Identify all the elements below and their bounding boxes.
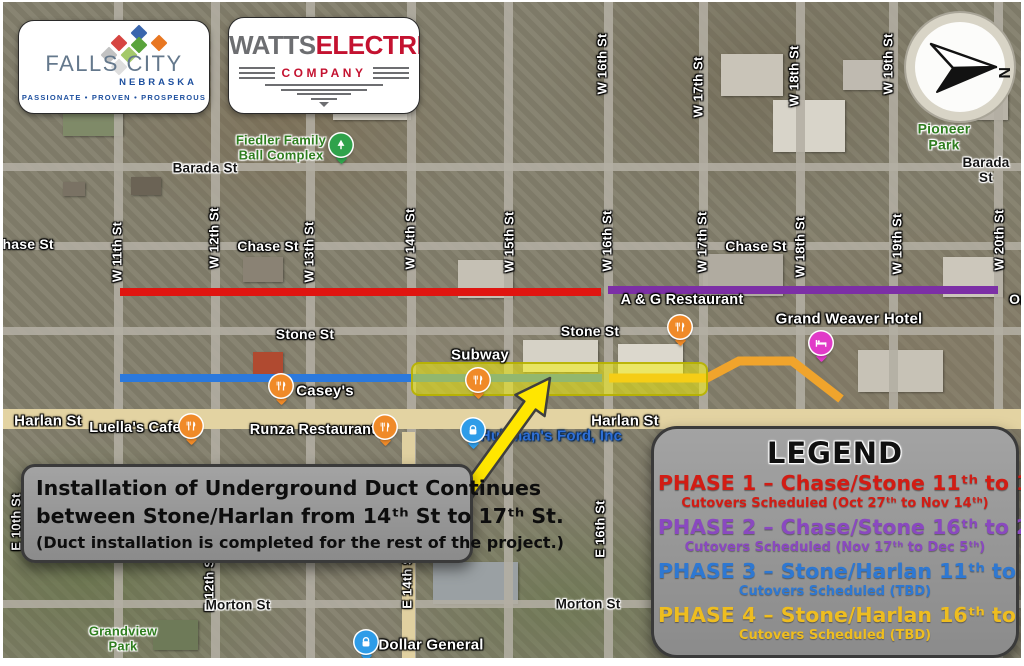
street-label-barada-east: Barada St <box>963 155 1010 185</box>
building <box>858 350 943 392</box>
legend-phase-schedule: Cutovers Scheduled (TBD) <box>658 628 1012 644</box>
aerial-map: W 11th StW 12th StW 13th StW 14th StW 15… <box>3 2 1021 658</box>
lock-pin-icon <box>355 631 378 654</box>
logo-diamond <box>151 35 168 52</box>
place-label-grandview-park: Grandview Park <box>89 624 157 653</box>
duct-work-highlight <box>411 362 708 396</box>
place-label-ag-restaurant: A & G Restaurant <box>621 292 744 308</box>
annotation-line-1: Installation of Underground Duct Continu… <box>36 474 458 502</box>
place-label-subway: Subway <box>451 348 509 365</box>
street-label-w-19th-north: W 19th St <box>882 33 897 94</box>
falls-city-logo-name: FALLS CITY <box>19 51 209 77</box>
building <box>63 182 85 196</box>
street-label-chase-west: Chase St <box>3 237 54 253</box>
street-label-w-16th: W 16th St <box>601 210 616 271</box>
legend-phase-label: PHASE 4 – Stone/Harlan 16ᵗʰ to 18ᵗʰ <box>658 603 1012 628</box>
street-label-e-16th: E 16th St <box>594 500 609 557</box>
street-label-harlan-west: Harlan St <box>14 414 82 431</box>
road <box>3 163 1021 171</box>
annotation-line-3: (Duct installation is completed for the … <box>36 530 458 555</box>
building <box>721 54 783 96</box>
tree-pin-icon <box>330 134 353 157</box>
street-label-barada-west: Barada St <box>173 160 238 175</box>
phase1-route-line <box>120 288 601 296</box>
place-label-dollar-general: Dollar General <box>378 638 483 655</box>
restaurant-pin-icon <box>669 316 692 339</box>
place-label-pioneer-park: Pioneer Park <box>906 121 983 152</box>
legend-title: LEGEND <box>658 435 1012 471</box>
street-label-w-15th: W 15th St <box>503 211 518 272</box>
street-label-stone-east: Stone St <box>561 324 619 340</box>
place-label-grand-weaver-hotel: Grand Weaver Hotel <box>776 312 923 329</box>
legend-rows: PHASE 1 – Chase/Stone 11ᵗʰ to 16ᵗʰCutove… <box>658 471 1012 644</box>
legend-phase-label: PHASE 3 – Stone/Harlan 11ᵗʰ to 16ᵗʰ <box>658 559 1012 584</box>
restaurant-pin-icon <box>180 415 203 438</box>
legend-box: LEGEND PHASE 1 – Chase/Stone 11ᵗʰ to 16ᵗ… <box>651 426 1019 658</box>
watts-electric-logo: WATTSELECTRIC COMPANY <box>228 17 420 114</box>
street-label-morton-west: Morton St <box>206 597 271 612</box>
lock-pin-icon <box>462 419 485 442</box>
watts-wing-lines-right-icon <box>373 67 409 79</box>
place-label-caseys: Casey's <box>296 384 354 401</box>
building <box>131 177 161 195</box>
restaurant-pin-icon <box>270 375 293 398</box>
street-label-w-14th: W 14th St <box>404 208 419 269</box>
compass-north-label: N <box>995 67 1012 79</box>
falls-city-logo-tagline: PASSIONATE • PROVEN • PROSPEROUS <box>19 93 209 102</box>
legend-phase-schedule: Cutovers Scheduled (Nov 17ᵗʰ to Dec 5ᵗʰ) <box>658 540 1012 556</box>
watts-electric-logo-name: WATTSELECTRIC <box>229 30 419 61</box>
street-label-w-17th: W 17th St <box>696 211 711 272</box>
street-label-morton-east: Morton St <box>556 596 621 611</box>
place-label-fiedler-ball-complex: Fiedler Family Ball Complex <box>236 133 326 162</box>
watts-chevron-lines-icon <box>229 84 419 107</box>
street-label-chase-mid: Chase St <box>237 239 299 255</box>
legend-phase-label: PHASE 2 – Chase/Stone 16ᵗʰ to 20ᵗʰ <box>658 515 1012 540</box>
street-label-w-18th-north: W 18th St <box>788 45 803 106</box>
annotation-box: Installation of Underground Duct Continu… <box>21 464 473 563</box>
legend-phase-schedule: Cutovers Scheduled (Oct 27ᵗʰ to Nov 14ᵗʰ… <box>658 496 1012 512</box>
street-label-w-19th: W 19th St <box>891 213 906 274</box>
falls-city-logo: FALLS CITY NEBRASKA PASSIONATE • PROVEN … <box>18 20 210 114</box>
street-label-clipped-east: On <box>1009 292 1021 308</box>
legend-phase-schedule: Cutovers Scheduled (TBD) <box>658 584 1012 600</box>
project-map-flyer: W 11th StW 12th StW 13th StW 14th StW 15… <box>0 0 1024 666</box>
street-label-stone-west: Stone St <box>276 327 334 343</box>
street-label-w-20th: W 20th St <box>993 209 1008 270</box>
street-label-w-11th: W 11th St <box>111 222 126 282</box>
electric-word: ELECTRIC <box>316 30 420 60</box>
building <box>253 352 283 374</box>
falls-city-logo-state: NEBRASKA <box>19 77 197 88</box>
street-label-chase-east: Chase St <box>725 239 787 255</box>
compass-rose-icon: N <box>901 8 1019 126</box>
watts-word: WATTS <box>229 30 316 60</box>
restaurant-pin-icon <box>374 416 397 439</box>
place-label-runza-restaurant: Runza Restaurant <box>250 422 376 438</box>
street-label-w-12th: W 12th St <box>208 207 223 268</box>
legend-phase-label: PHASE 1 – Chase/Stone 11ᵗʰ to 16ᵗʰ <box>658 471 1012 496</box>
place-label-luellas-cafe: Luella's Cafe <box>89 420 180 436</box>
building <box>153 620 198 650</box>
street-label-w-18th: W 18th St <box>794 216 809 277</box>
company-word: COMPANY <box>282 66 367 80</box>
street-label-w-16th-north: W 16th St <box>596 33 611 94</box>
building <box>243 257 283 282</box>
hotel-pin-icon <box>810 332 833 355</box>
building <box>773 100 845 152</box>
place-label-hullmans-ford: Hullman's Ford, Inc <box>480 429 622 446</box>
watts-wing-lines-left-icon <box>239 67 275 79</box>
street-label-w-13th: W 13th St <box>303 221 318 282</box>
watts-company-row: COMPANY <box>229 66 419 80</box>
street-label-w-17th-north: W 17th St <box>692 56 707 117</box>
restaurant-pin-icon <box>467 369 490 392</box>
annotation-line-2: between Stone/Harlan from 14ᵗʰ St to 17ᵗ… <box>36 502 458 530</box>
